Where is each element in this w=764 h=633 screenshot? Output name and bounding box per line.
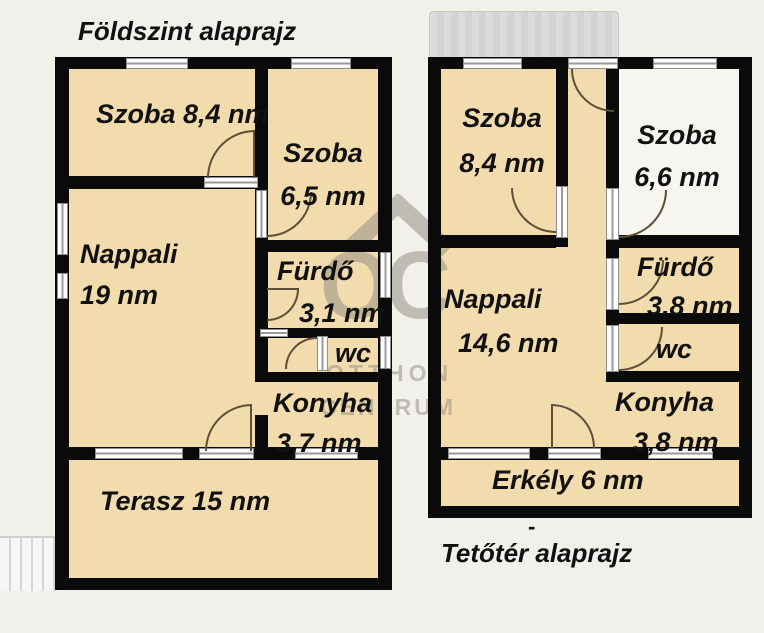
window bbox=[448, 448, 530, 459]
floorplan-canvas: Földszint alaprajz bbox=[0, 0, 764, 633]
window bbox=[57, 203, 68, 255]
roof-terrace-strip bbox=[429, 11, 619, 58]
door-leaf bbox=[253, 130, 255, 178]
room-name: Nappali bbox=[444, 277, 559, 321]
room-area: 3,1 nm bbox=[277, 292, 385, 334]
entry-door-sill bbox=[568, 58, 618, 69]
room-name: Szoba bbox=[443, 96, 561, 141]
room-name: Konyha bbox=[273, 383, 372, 423]
room-label-nappali: Nappali 19 nm bbox=[80, 234, 178, 316]
room-label-furdo: Fürdő 3,8 nm bbox=[637, 248, 733, 326]
room-label-terasz: Terasz 15 nm bbox=[100, 481, 270, 521]
wall bbox=[255, 372, 392, 382]
room-area: 6,5 nm bbox=[267, 175, 379, 218]
window bbox=[57, 273, 68, 299]
room-area: 8,4 nm bbox=[443, 141, 561, 186]
door-jamb bbox=[256, 190, 267, 238]
room-name: Fürdő bbox=[277, 250, 385, 292]
window bbox=[126, 58, 188, 69]
door-jamb bbox=[606, 258, 619, 310]
room-name: Fürdő bbox=[637, 248, 733, 287]
window bbox=[380, 336, 391, 369]
room-label-szoba2: Szoba 6,6 nm bbox=[622, 114, 732, 198]
room-area: 3,8 nm bbox=[637, 287, 733, 326]
window bbox=[95, 448, 183, 459]
room-label-furdo: Fürdő 3,1 nm bbox=[277, 250, 385, 334]
wall bbox=[619, 371, 752, 382]
room-label-konyha: Konyha 3,8 nm bbox=[615, 382, 719, 462]
room-name: Konyha bbox=[615, 382, 719, 422]
wall bbox=[55, 57, 69, 590]
wall bbox=[428, 506, 752, 518]
room-area: 3,8 nm bbox=[615, 422, 719, 462]
room-label-szoba1: Szoba 8,4 nm bbox=[443, 96, 561, 186]
door-jamb bbox=[606, 188, 619, 240]
door-jamb bbox=[606, 325, 619, 372]
room-label-wc: wc bbox=[335, 336, 371, 370]
room-area: 19 nm bbox=[80, 275, 178, 316]
door-jamb bbox=[317, 336, 328, 371]
door-sill bbox=[548, 448, 601, 459]
room-label-erkely: Erkély 6 nm bbox=[492, 462, 644, 498]
door-jamb bbox=[556, 186, 568, 238]
room-label-nappali: Nappali 14,6 nm bbox=[444, 277, 559, 365]
room-name: Szoba bbox=[622, 114, 732, 156]
door-leaf bbox=[551, 404, 553, 448]
window bbox=[463, 58, 522, 69]
room-label-wc: wc bbox=[656, 332, 692, 366]
room-area: 6,6 nm bbox=[622, 156, 732, 198]
exterior-staircase bbox=[0, 536, 57, 591]
attic-floor-title: Tetőtér alaprajz bbox=[441, 538, 632, 569]
wall bbox=[428, 235, 556, 248]
room-area: 3,7 nm bbox=[273, 423, 372, 463]
door-leaf bbox=[250, 404, 252, 451]
title-dash-mark: - bbox=[528, 522, 535, 532]
ground-floor-title: Földszint alaprajz bbox=[78, 16, 296, 47]
window bbox=[653, 58, 717, 69]
window bbox=[291, 58, 351, 69]
door-sill bbox=[204, 177, 258, 188]
room-name: Nappali bbox=[80, 234, 178, 275]
room-label-konyha: Konyha 3,7 nm bbox=[273, 383, 372, 463]
room-name: Szoba bbox=[267, 132, 379, 175]
room-label-szoba1: Szoba 8,4 nm bbox=[96, 94, 269, 134]
room-label-szoba2: Szoba 6,5 nm bbox=[267, 132, 379, 218]
room-area: 14,6 nm bbox=[444, 321, 559, 365]
wall bbox=[55, 578, 392, 590]
